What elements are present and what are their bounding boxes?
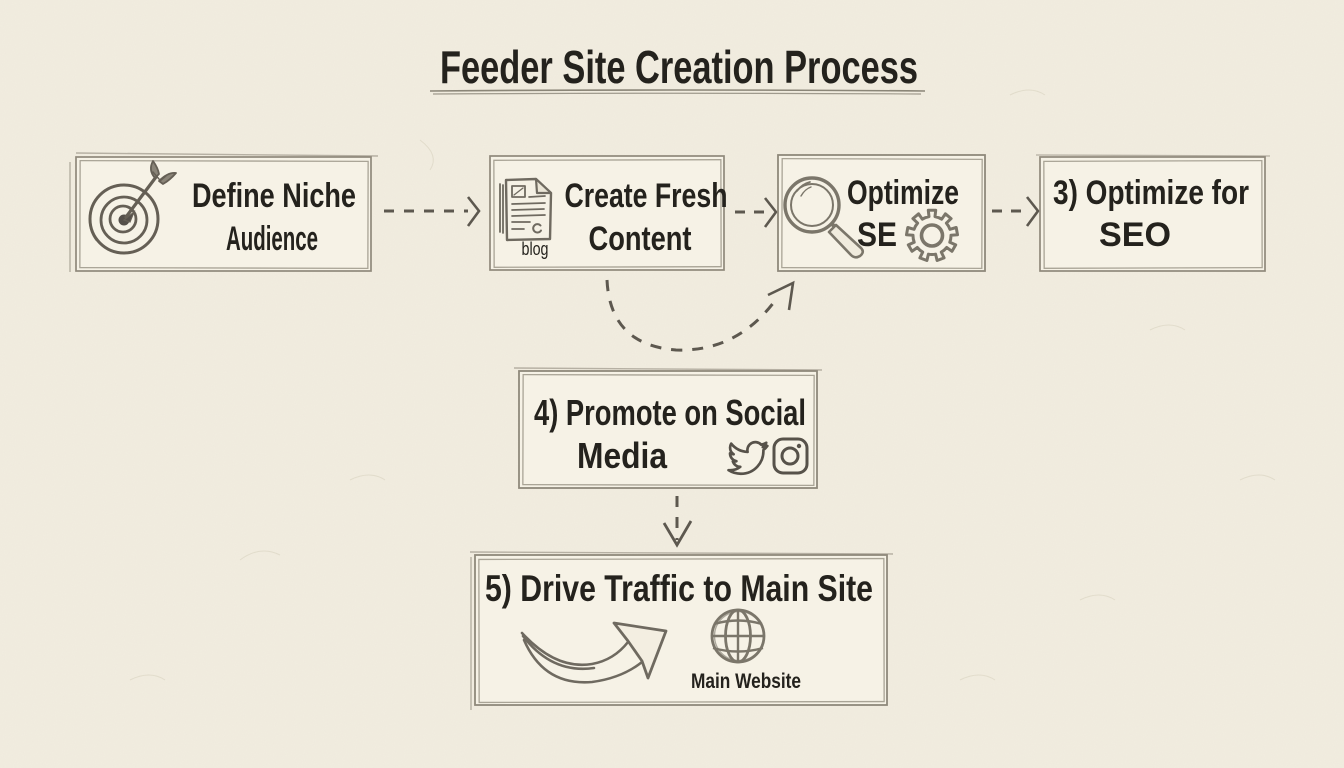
svg-text:SE: SE	[857, 216, 897, 254]
svg-text:Content: Content	[589, 220, 692, 258]
svg-text:3) Optimize for: 3) Optimize for	[1053, 174, 1249, 212]
svg-text:Define Niche: Define Niche	[192, 177, 356, 215]
svg-text:Create Fresh: Create Fresh	[565, 177, 728, 215]
svg-text:4) Promote on Social: 4) Promote on Social	[534, 392, 806, 433]
svg-text:Optimize: Optimize	[847, 174, 959, 212]
svg-text:Audience: Audience	[226, 220, 318, 258]
svg-text:Media: Media	[577, 435, 668, 476]
svg-text:Main Website: Main Website	[691, 670, 801, 693]
svg-text:Feeder Site Creation Process: Feeder Site Creation Process	[440, 41, 918, 93]
svg-text:SEO: SEO	[1099, 216, 1171, 254]
svg-text:5) Drive Traffic to Main Site: 5) Drive Traffic to Main Site	[485, 568, 873, 609]
svg-text:blog: blog	[522, 239, 549, 259]
